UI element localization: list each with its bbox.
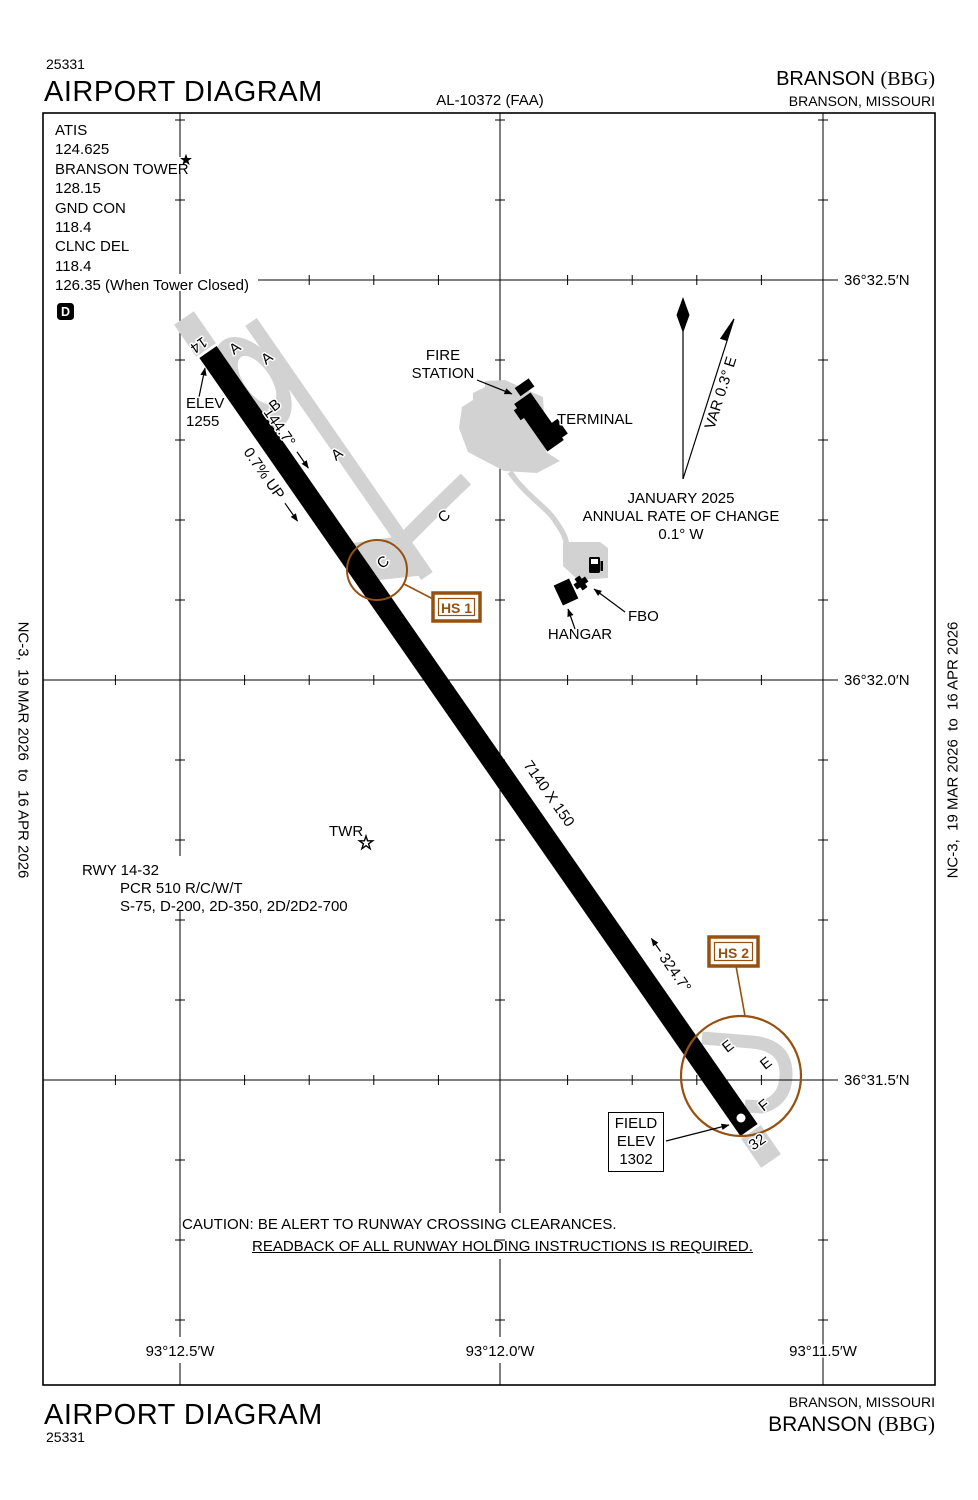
tower-frequency: 128.15 [55, 179, 249, 198]
chart-number-top: 25331 [46, 56, 85, 72]
longitude-label: 93°11.5′W [789, 1343, 858, 1360]
tower-label: TWR [329, 823, 363, 840]
heading-32-arrow [651, 938, 660, 951]
caution-line2: READBACK OF ALL RUNWAY HOLDING INSTRUCTI… [252, 1238, 753, 1255]
variation-rate: ANNUAL RATE OF CHANGE [583, 508, 780, 525]
frequency-block: ATIS 124.625 BRANSON TOWER 128.15 GND CO… [55, 121, 249, 296]
longitude-label: 93°12.0′W [466, 1343, 536, 1360]
variation-date: JANUARY 2025 [627, 490, 734, 507]
service-road [510, 472, 567, 546]
gradient-arrow [285, 503, 298, 521]
edition-note-left: NC-3, 19 MAR 2026 to 16 APR 2026 [15, 622, 32, 879]
clearance-frequency: 118.4 [55, 257, 249, 276]
fbo-arrow [594, 589, 625, 612]
field-elevation-box: FIELD ELEV 1302 [608, 1112, 664, 1172]
fbo-label: FBO [628, 608, 659, 625]
runway-pcr: PCR 510 R/C/W/T [82, 880, 348, 898]
fire-station-label: FIRE [426, 347, 460, 364]
compass: VAR 0.3° E [677, 297, 741, 479]
caution-line1: CAUTION: BE ALERT TO RUNWAY CROSSING CLE… [182, 1216, 617, 1233]
terminal-label: TERMINAL [557, 411, 633, 428]
ground-label: GND CON [55, 199, 249, 218]
city-state-bottom: BRANSON, MISSOURI [789, 1394, 935, 1410]
latitude-label: 36°32.0′N [844, 672, 910, 689]
clearance-label: CLNC DEL [55, 237, 249, 256]
class-d-airspace-icon: D [57, 303, 74, 320]
atis-label: ATIS [55, 121, 249, 140]
chart-number-bottom: 25331 [46, 1429, 85, 1445]
hotspot-2-label: HS 2 [718, 945, 749, 961]
airport-name-bottom: BRANSON (BBG) [768, 1412, 935, 1437]
latitude-label: 36°32.5′N [844, 272, 910, 289]
fire-station-label: STATION [412, 365, 475, 382]
elev-1255-value: 1255 [186, 413, 219, 430]
edition-note-right: NC-3, 19 MAR 2026 to 16 APR 2026 [945, 622, 962, 879]
variation-label: VAR 0.3° E [702, 355, 741, 432]
page-title-top: AIRPORT DIAGRAM [44, 76, 323, 109]
hotspot-1-label: HS 1 [441, 600, 472, 616]
magnetic-north-barb-icon [720, 318, 734, 341]
graticule [43, 113, 838, 1385]
variation-rate-value: 0.1° W [658, 526, 704, 543]
city-state-top: BRANSON, MISSOURI [789, 93, 935, 109]
hangar-building [554, 578, 579, 605]
runway-14-32 [208, 352, 749, 1130]
hotspot-1-leader [404, 584, 433, 599]
hotspot-2-leader [736, 966, 745, 1016]
elev-1255-label: ELEV [186, 395, 224, 412]
tower-closed-frequency: 126.35 (When Tower Closed) [55, 276, 249, 295]
al-number: AL-10372 (FAA) [380, 92, 600, 109]
airport-name-top: BRANSON (BBG) [776, 68, 935, 91]
page-title-bottom: AIRPORT DIAGRAM [44, 1399, 323, 1432]
taxiway-e-label: E [757, 1054, 775, 1074]
runway-data-title: RWY 14-32 [82, 862, 348, 880]
latitude-label: 36°31.5′N [844, 1072, 910, 1089]
runway-data-block: RWY 14-32 PCR 510 R/C/W/T S-75, D-200, 2… [82, 862, 348, 916]
elev-1255-arrow [199, 368, 205, 397]
runway-strength: S-75, D-200, 2D-350, 2D/2D2-700 [82, 898, 348, 916]
north-arrowhead-icon [677, 297, 690, 333]
longitude-label: 93°12.5′W [146, 1343, 216, 1360]
hangar-label: HANGAR [548, 626, 612, 643]
field-elevation-dot [737, 1114, 746, 1123]
ground-frequency: 118.4 [55, 218, 249, 237]
tower-name: BRANSON TOWER [55, 160, 249, 179]
atis-frequency: 124.625 [55, 140, 249, 159]
